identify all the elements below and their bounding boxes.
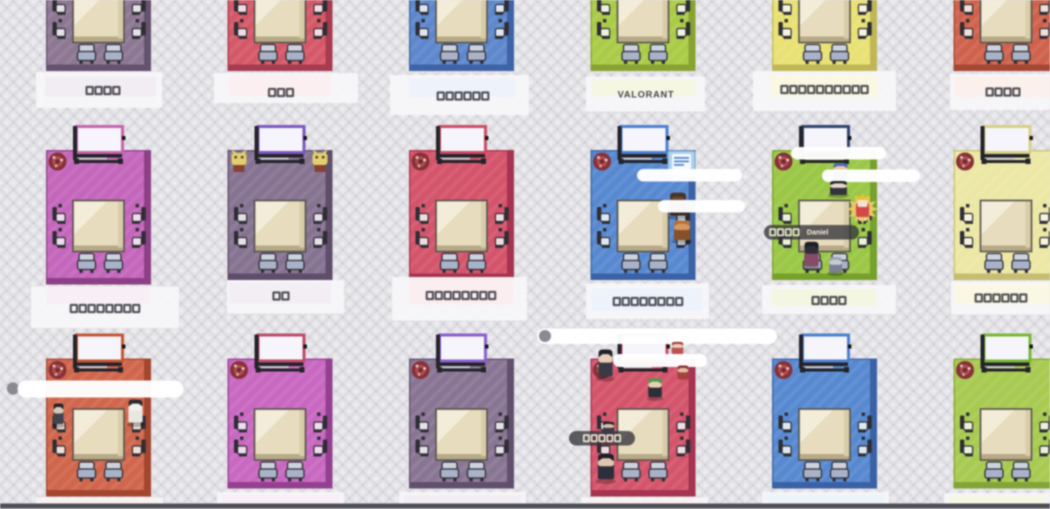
svg-text:Daniel: Daniel [807,228,829,237]
svg-text:VALORANT: VALORANT [618,89,675,99]
